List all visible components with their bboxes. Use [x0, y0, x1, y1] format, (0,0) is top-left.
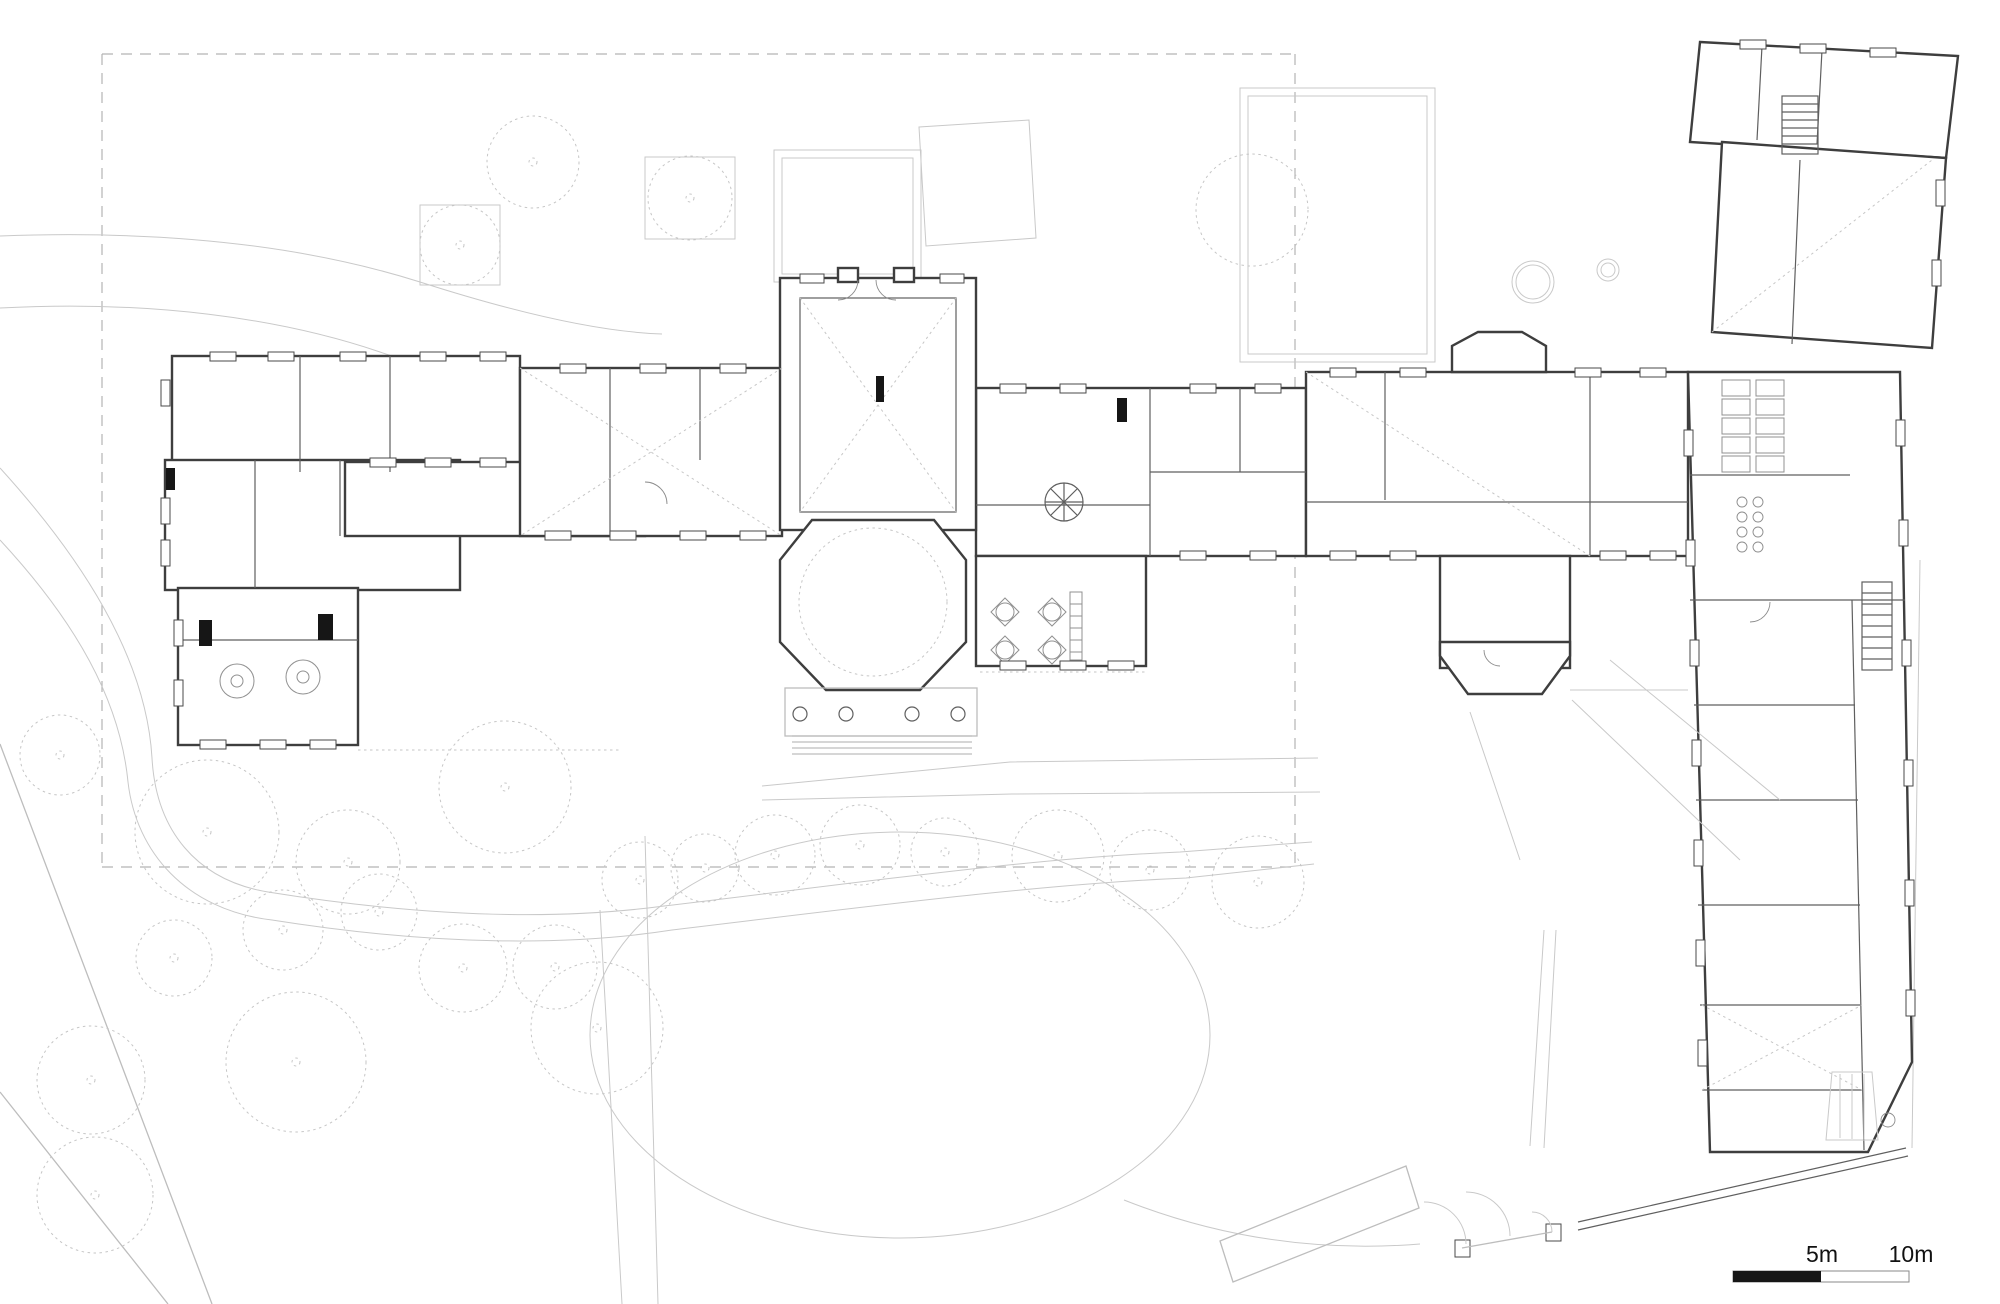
- window-mark: [480, 458, 506, 467]
- tree-trunk: [344, 858, 352, 866]
- north-building: [1712, 142, 1946, 348]
- tree-trunk: [91, 1191, 99, 1199]
- tree-trunk: [456, 241, 464, 249]
- window-mark: [1600, 551, 1626, 560]
- layer-annot: [1733, 1271, 1909, 1282]
- tree-canopy: [735, 815, 815, 895]
- tree-canopy: [243, 890, 323, 970]
- window-mark: [174, 680, 183, 706]
- chimney: [166, 468, 175, 490]
- window-mark: [161, 380, 170, 406]
- window-mark: [1330, 368, 1356, 377]
- tree-trunk: [87, 1076, 95, 1084]
- window-mark: [1899, 520, 1908, 546]
- floor-plan-page: 5m 10m: [0, 0, 2000, 1304]
- window-mark: [1690, 640, 1699, 666]
- tree-trunk: [593, 1024, 601, 1032]
- portico-terrace: [785, 688, 977, 736]
- entrance-pier: [894, 268, 914, 282]
- chimney: [1117, 398, 1127, 422]
- column: [905, 707, 919, 721]
- window-mark: [260, 740, 286, 749]
- window-mark: [370, 458, 396, 467]
- window-mark: [1060, 384, 1086, 393]
- window-mark: [174, 620, 183, 646]
- column: [839, 707, 853, 721]
- tree-trunk: [459, 964, 467, 972]
- window-mark: [1698, 1040, 1707, 1066]
- garden-path: [600, 836, 658, 1304]
- window-mark: [1905, 880, 1914, 906]
- window-mark: [1640, 368, 1666, 377]
- window-mark: [1936, 180, 1945, 206]
- window-mark: [640, 364, 666, 373]
- tree-canopy: [602, 842, 678, 918]
- tree-canopy: [671, 834, 739, 902]
- window-mark: [1400, 368, 1426, 377]
- window-mark: [310, 740, 336, 749]
- entrance-pier: [838, 268, 858, 282]
- tree-trunk: [292, 1058, 300, 1066]
- north-building: [1690, 42, 1958, 158]
- window-mark: [1180, 551, 1206, 560]
- tree-canopy: [37, 1137, 153, 1253]
- window-mark: [480, 352, 506, 361]
- tree-trunk: [551, 963, 559, 971]
- window-mark: [1696, 940, 1705, 966]
- tree-trunk: [856, 841, 864, 849]
- ramp: [1220, 1166, 1419, 1282]
- window-mark: [800, 274, 824, 283]
- chimney: [876, 376, 884, 402]
- window-mark: [1255, 384, 1281, 393]
- window-mark: [210, 352, 236, 361]
- window-mark: [940, 274, 964, 283]
- scale-label-5m: 5m: [1806, 1242, 1838, 1266]
- window-mark: [200, 740, 226, 749]
- window-mark: [1686, 540, 1695, 566]
- gate: [1462, 1232, 1552, 1248]
- window-mark: [1740, 40, 1766, 49]
- lawn-oval: [590, 832, 1210, 1238]
- west-wing-annex: [178, 588, 358, 745]
- window-mark: [740, 531, 766, 540]
- gate-swing: [1424, 1192, 1552, 1244]
- tree-canopy: [513, 925, 597, 1009]
- tree-canopy: [439, 721, 571, 853]
- garden-court: [774, 150, 921, 282]
- window-mark: [720, 364, 746, 373]
- window-mark: [1800, 44, 1826, 53]
- tree-trunk: [1254, 878, 1262, 886]
- pavilion-bay: [1440, 642, 1570, 694]
- tree-trunk: [771, 851, 779, 859]
- column: [793, 707, 807, 721]
- garden-path: [762, 758, 1320, 800]
- window-mark: [1902, 640, 1911, 666]
- tree-trunk: [279, 926, 287, 934]
- tree-canopy: [341, 874, 417, 950]
- scale-label-10m: 10m: [1889, 1242, 1934, 1266]
- floor-plan-canvas: [0, 0, 2000, 1304]
- bay-window: [1452, 332, 1546, 372]
- east-range: [1306, 372, 1688, 556]
- tree-trunk: [701, 864, 709, 872]
- garden-court: [1240, 88, 1435, 362]
- window-mark: [1684, 430, 1693, 456]
- garden-path: [1124, 930, 1556, 1246]
- tree-trunk: [170, 954, 178, 962]
- tree-canopy: [911, 818, 979, 886]
- west-wing: [172, 356, 520, 472]
- window-mark: [560, 364, 586, 373]
- window-mark: [1060, 661, 1086, 670]
- scale-bar-filled: [1733, 1271, 1821, 1282]
- window-mark: [1000, 661, 1026, 670]
- tree-canopy: [419, 924, 507, 1012]
- tree-trunk: [203, 828, 211, 836]
- column: [951, 707, 965, 721]
- great-hall: [780, 278, 976, 530]
- tree-canopy: [37, 1026, 145, 1134]
- window-mark: [1896, 420, 1905, 446]
- chimney: [318, 614, 333, 640]
- window-mark: [1575, 368, 1601, 377]
- chimney: [199, 620, 212, 646]
- window-mark: [420, 352, 446, 361]
- tree-trunk: [56, 751, 64, 759]
- fountain: [1601, 263, 1615, 277]
- window-mark: [545, 531, 571, 540]
- fountain: [1516, 265, 1550, 299]
- window-mark: [610, 531, 636, 540]
- tree-canopy: [136, 920, 212, 996]
- garden-court: [1248, 96, 1427, 354]
- tree-canopy: [1110, 830, 1190, 910]
- tree-canopy: [226, 992, 366, 1132]
- window-mark: [1906, 990, 1915, 1016]
- garden-path: [0, 235, 662, 334]
- window-mark: [161, 540, 170, 566]
- layer-building: [165, 42, 1958, 1152]
- window-mark: [425, 458, 451, 467]
- vestibule: [780, 520, 966, 690]
- fountain: [1597, 259, 1619, 281]
- window-mark: [1330, 551, 1356, 560]
- tree-trunk: [686, 194, 694, 202]
- window-mark: [1932, 260, 1941, 286]
- window-mark: [1108, 661, 1134, 670]
- tree-trunk: [636, 876, 644, 884]
- tree-canopy: [487, 116, 579, 208]
- window-mark: [340, 352, 366, 361]
- tree-canopy: [1212, 836, 1304, 928]
- window-mark: [1250, 551, 1276, 560]
- tree-trunk: [941, 848, 949, 856]
- tree-canopy: [20, 715, 100, 795]
- right-wing: [1688, 372, 1912, 1152]
- planter: [645, 157, 735, 239]
- tree-trunk: [501, 783, 509, 791]
- garden-court: [782, 158, 913, 274]
- window-mark: [161, 498, 170, 524]
- steps: [792, 736, 972, 754]
- window-mark: [1692, 740, 1701, 766]
- window-mark: [1190, 384, 1216, 393]
- tree-canopy: [820, 805, 900, 885]
- fountain: [1512, 261, 1554, 303]
- tree-canopy: [135, 760, 279, 904]
- tree-trunk: [375, 908, 383, 916]
- tree-canopy: [1196, 154, 1308, 266]
- tree-canopy: [1012, 810, 1104, 902]
- window-mark: [1390, 551, 1416, 560]
- window-mark: [680, 531, 706, 540]
- window-mark: [1904, 760, 1913, 786]
- boundary-line: [1912, 560, 1920, 1148]
- garden-court: [919, 120, 1036, 246]
- site-wall: [1578, 1148, 1908, 1230]
- window-mark: [268, 352, 294, 361]
- terrace-edge: [358, 672, 1146, 750]
- window-mark: [1000, 384, 1026, 393]
- tree-canopy: [420, 205, 500, 285]
- layer-garden: [420, 88, 1619, 362]
- tree-trunk: [529, 158, 537, 166]
- tree-canopy: [531, 962, 663, 1094]
- window-mark: [1650, 551, 1676, 560]
- tree-canopy: [648, 156, 732, 240]
- garden-path: [0, 744, 212, 1304]
- window-mark: [1870, 48, 1896, 57]
- window-mark: [1694, 840, 1703, 866]
